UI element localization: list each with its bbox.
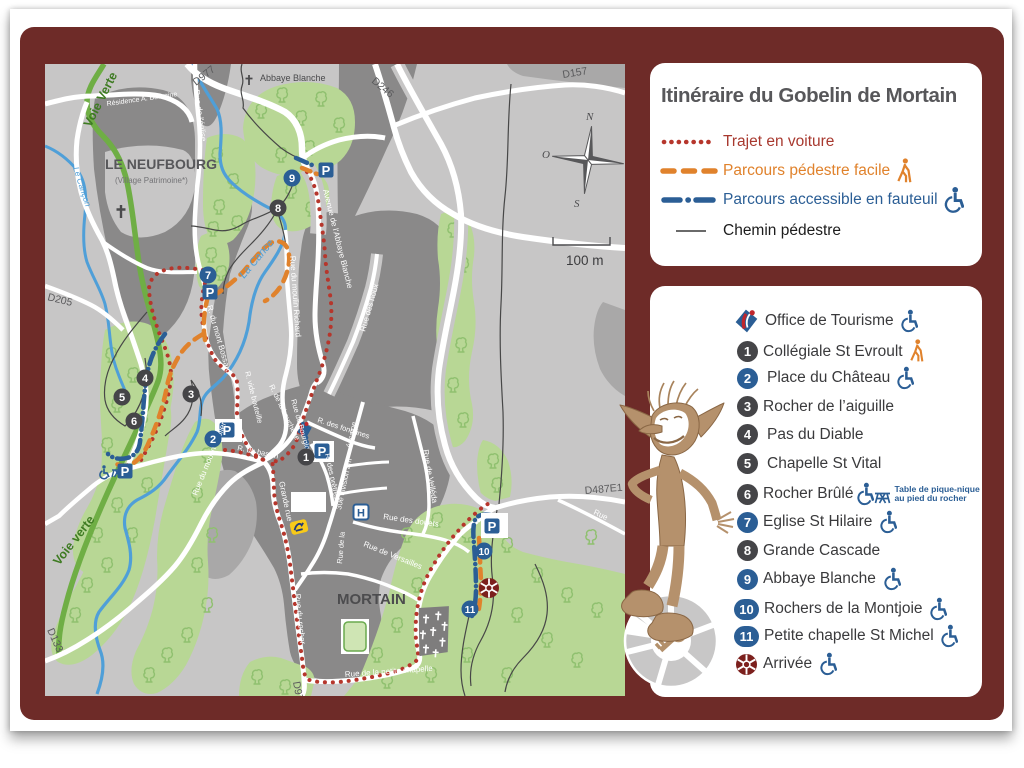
svg-text:6: 6 (131, 416, 137, 428)
svg-text:5: 5 (119, 392, 125, 404)
svg-text:(Village Patrimoine*): (Village Patrimoine*) (115, 176, 188, 185)
svg-text:10: 10 (478, 547, 490, 558)
svg-text:1: 1 (303, 452, 309, 464)
svg-text:2: 2 (210, 434, 216, 446)
svg-text:100 m: 100 m (566, 253, 604, 268)
svg-text:MORTAIN: MORTAIN (337, 591, 406, 608)
svg-text:4: 4 (142, 373, 149, 385)
svg-text:H: H (357, 508, 365, 520)
svg-text:LE NEUFBOURG: LE NEUFBOURG (105, 156, 217, 172)
svg-text:3: 3 (188, 389, 194, 401)
svg-text:N: N (585, 111, 594, 123)
svg-text:9: 9 (289, 173, 295, 185)
svg-text:7: 7 (205, 270, 211, 282)
svg-text:S: S (574, 198, 580, 210)
svg-text:Abbaye Blanche: Abbaye Blanche (260, 73, 326, 83)
svg-text:8: 8 (275, 203, 281, 215)
svg-text:11: 11 (465, 605, 476, 616)
svg-text:O: O (542, 149, 550, 161)
